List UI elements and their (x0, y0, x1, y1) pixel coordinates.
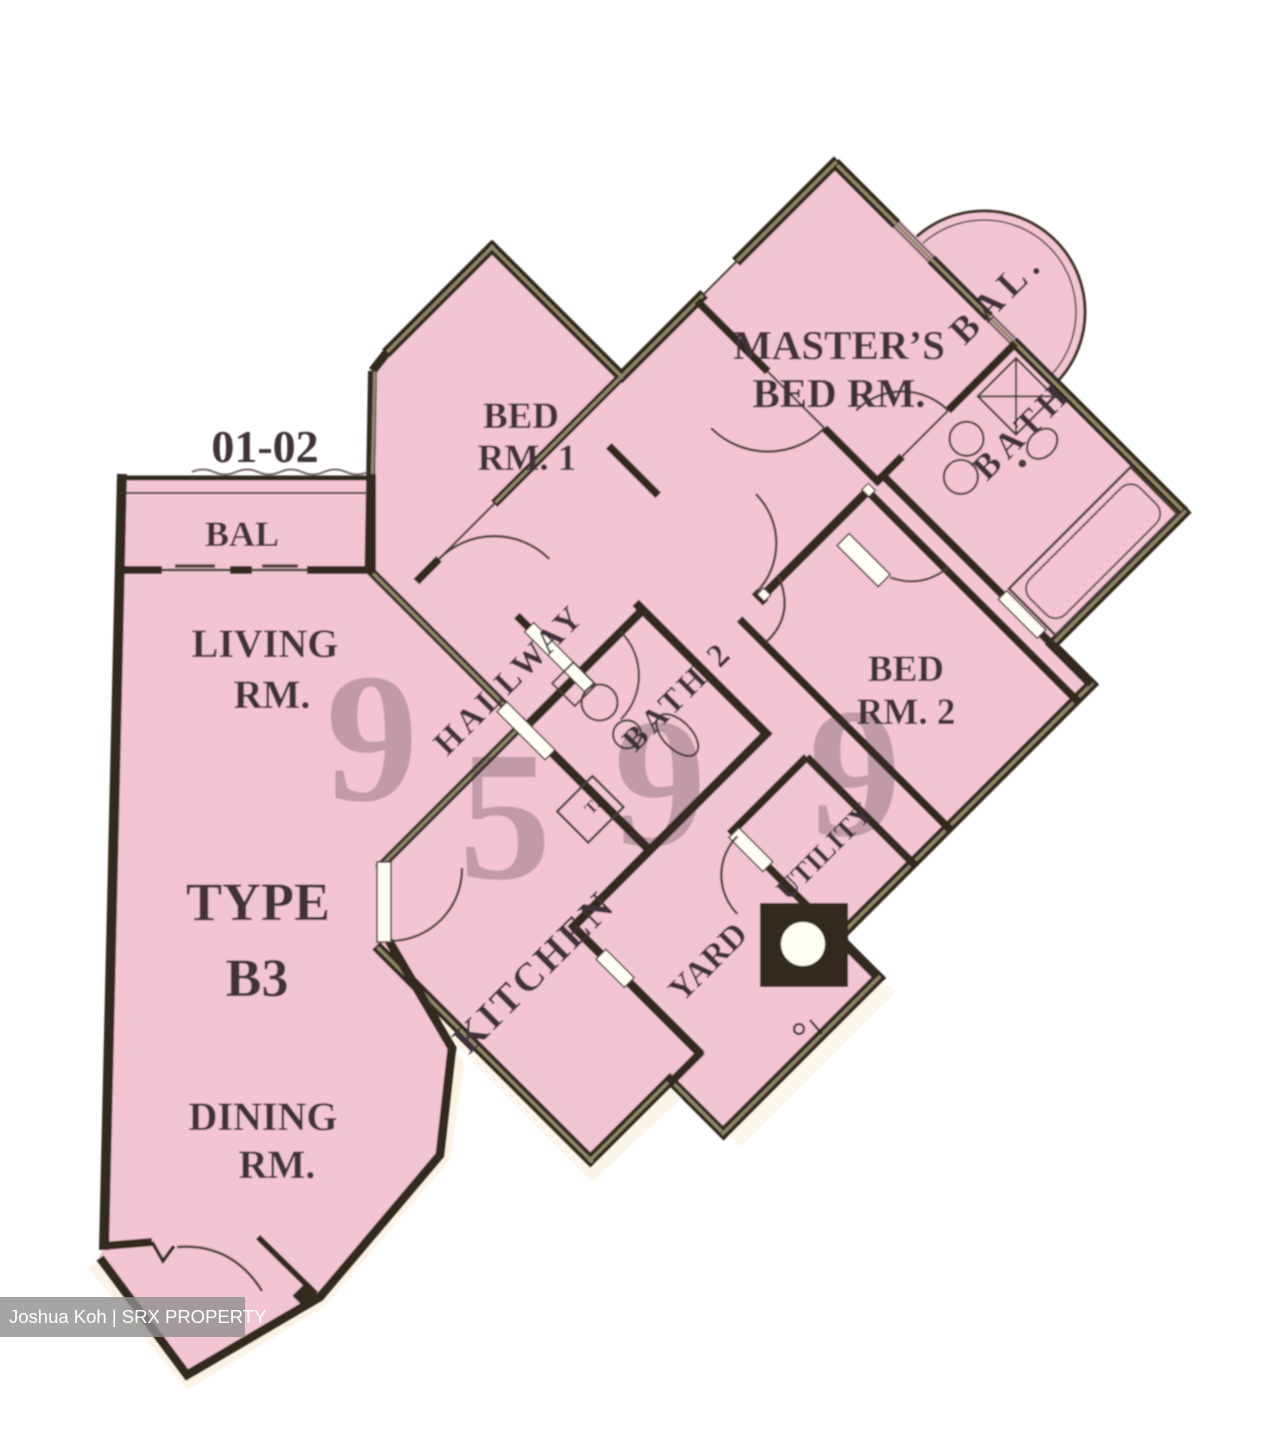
svg-text:BED RM.: BED RM. (752, 370, 925, 416)
svg-text:LIVING: LIVING (192, 621, 339, 666)
svg-text:RM.: RM. (239, 1142, 316, 1187)
svg-text:B3: B3 (225, 948, 288, 1008)
svg-text:BED: BED (868, 649, 944, 690)
svg-text:RM.: RM. (234, 672, 311, 717)
svg-text:DINING: DINING (189, 1094, 338, 1139)
svg-text:TYPE: TYPE (186, 872, 330, 932)
svg-text:5: 5 (459, 714, 552, 919)
svg-text:RM. 2: RM. 2 (857, 692, 956, 733)
svg-text:BAL: BAL (205, 514, 279, 554)
svg-text:01-02: 01-02 (211, 421, 318, 472)
svg-text:9: 9 (326, 636, 419, 841)
svg-text:BED: BED (483, 396, 559, 437)
svg-text:RM. 1: RM. 1 (478, 438, 577, 479)
svg-text:MASTER’S: MASTER’S (733, 322, 945, 368)
svg-text:Joshua Koh | SRX PROPERTY: Joshua Koh | SRX PROPERTY (9, 1306, 266, 1327)
